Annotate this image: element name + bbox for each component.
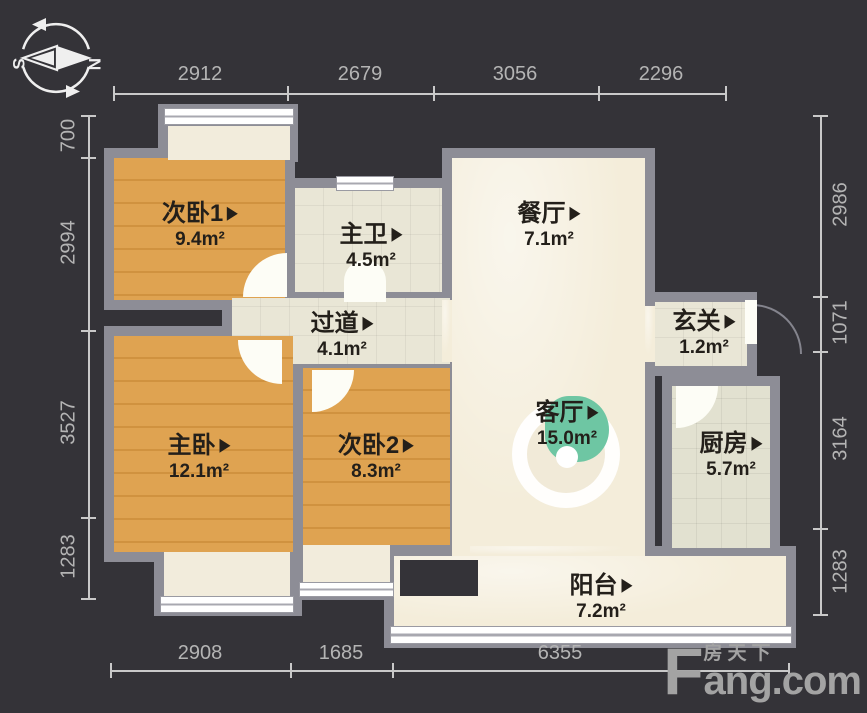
floorplan-canvas: 次卧1 9.4m² 主卫 4.5m² 餐厅 7.1m² 过道 4.1m² 玄关 … bbox=[0, 0, 867, 713]
dim-tick bbox=[725, 86, 727, 101]
room-area: 7.1m² bbox=[518, 229, 581, 251]
room-arrow-icon bbox=[392, 228, 403, 242]
dim-tick bbox=[813, 296, 828, 298]
room-name: 次卧2 bbox=[338, 433, 399, 459]
window-bed2-bottom bbox=[299, 582, 394, 597]
window-master-bottom bbox=[160, 596, 294, 613]
room-arrow-icon bbox=[220, 439, 231, 453]
room-area: 12.1m² bbox=[168, 461, 231, 483]
dim-label-right-3: 1283 bbox=[830, 532, 853, 612]
dim-tick bbox=[813, 614, 828, 616]
dim-tick bbox=[81, 157, 96, 159]
room-name: 主卫 bbox=[340, 222, 388, 248]
bay-window-master bbox=[164, 552, 290, 598]
opening-living-balcony bbox=[470, 546, 645, 556]
room-arrow-icon bbox=[403, 439, 414, 453]
entrance-door-leaf bbox=[745, 300, 757, 344]
room-name: 过道 bbox=[311, 311, 359, 337]
dim-label-top-1: 2679 bbox=[310, 63, 410, 86]
dim-tick bbox=[81, 598, 96, 600]
dim-tick bbox=[81, 330, 96, 332]
room-label-entry: 玄关 1.2m² bbox=[673, 309, 736, 359]
room-label-living: 客厅 15.0m² bbox=[536, 400, 599, 450]
room-label-bed1: 次卧1 9.4m² bbox=[162, 201, 238, 251]
opening-corridor-living bbox=[442, 300, 452, 362]
compass-icon: S N bbox=[10, 12, 102, 104]
room-area: 5.7m² bbox=[700, 459, 763, 481]
dim-tick bbox=[598, 86, 600, 101]
dim-tick bbox=[113, 86, 115, 101]
room-name: 厨房 bbox=[700, 431, 748, 457]
bay-window-bed1 bbox=[168, 126, 290, 160]
opening-entry-living bbox=[645, 306, 655, 362]
dim-label-left-3: 1283 bbox=[58, 517, 81, 597]
dim-line-left bbox=[88, 115, 90, 598]
room-name: 客厅 bbox=[536, 400, 584, 426]
balcony-duct bbox=[400, 560, 478, 596]
room-label-master: 主卧 12.1m² bbox=[168, 433, 231, 483]
room-arrow-icon bbox=[227, 207, 238, 221]
dim-label-right-1: 1071 bbox=[830, 283, 853, 363]
dim-tick bbox=[287, 86, 289, 101]
fang-logo-en: ang.com bbox=[704, 663, 861, 699]
room-area: 15.0m² bbox=[536, 428, 599, 450]
room-label-bath: 主卫 4.5m² bbox=[340, 222, 403, 272]
room-name: 玄关 bbox=[673, 309, 721, 335]
fang-logo: F 房天下 ang.com bbox=[663, 644, 861, 699]
dim-label-right-0: 2986 bbox=[830, 165, 853, 245]
dim-label-top-0: 2912 bbox=[150, 63, 250, 86]
dim-label-left-2: 3527 bbox=[58, 383, 81, 463]
bay-window-bed2 bbox=[303, 545, 390, 584]
room-area: 9.4m² bbox=[162, 229, 238, 251]
room-name: 主卧 bbox=[168, 433, 216, 459]
room-name: 餐厅 bbox=[518, 201, 566, 227]
room-arrow-icon bbox=[363, 317, 374, 331]
room-label-bed2: 次卧2 8.3m² bbox=[338, 433, 414, 483]
room-label-balcony: 阳台 7.2m² bbox=[570, 573, 633, 623]
dim-label-left-0: 700 bbox=[58, 96, 81, 176]
dim-tick bbox=[392, 663, 394, 678]
room-area: 4.5m² bbox=[340, 250, 403, 272]
window-bath-top bbox=[336, 176, 394, 191]
dim-tick bbox=[110, 663, 112, 678]
room-arrow-icon bbox=[570, 207, 581, 221]
room-area: 7.2m² bbox=[570, 601, 633, 623]
room-arrow-icon bbox=[752, 437, 763, 451]
room-label-dining: 餐厅 7.1m² bbox=[518, 201, 581, 251]
dim-label-right-2: 3164 bbox=[830, 399, 853, 479]
dim-label-bottom-2: 6355 bbox=[510, 642, 610, 665]
dim-tick bbox=[813, 528, 828, 530]
dim-label-bottom-0: 2908 bbox=[150, 642, 250, 665]
dim-tick bbox=[290, 663, 292, 678]
dim-tick bbox=[81, 517, 96, 519]
dim-tick bbox=[433, 86, 435, 101]
room-name: 次卧1 bbox=[162, 201, 223, 227]
dim-label-left-1: 2994 bbox=[58, 203, 81, 283]
dim-label-top-2: 3056 bbox=[465, 63, 565, 86]
room-arrow-icon bbox=[725, 315, 736, 329]
room-arrow-icon bbox=[588, 406, 599, 420]
dim-tick bbox=[813, 351, 828, 353]
dim-line-right bbox=[820, 115, 822, 616]
dim-line-top bbox=[113, 93, 726, 95]
entrance-door-arc bbox=[752, 304, 802, 354]
room-name: 阳台 bbox=[570, 573, 618, 599]
dim-tick bbox=[813, 115, 828, 117]
room-label-corridor: 过道 4.1m² bbox=[311, 311, 374, 361]
room-arrow-icon bbox=[622, 579, 633, 593]
dim-label-bottom-1: 1685 bbox=[291, 642, 391, 665]
dim-label-top-3: 2296 bbox=[611, 63, 711, 86]
fang-logo-f: F bbox=[663, 644, 701, 698]
room-area: 4.1m² bbox=[311, 339, 374, 361]
room-area: 8.3m² bbox=[338, 461, 414, 483]
room-area: 1.2m² bbox=[673, 337, 736, 359]
room-label-kitchen: 厨房 5.7m² bbox=[700, 431, 763, 481]
dim-tick bbox=[81, 115, 96, 117]
compass-south-label: S bbox=[10, 58, 28, 69]
compass-north-label: N bbox=[85, 58, 102, 70]
window-bed1-top bbox=[164, 108, 294, 125]
